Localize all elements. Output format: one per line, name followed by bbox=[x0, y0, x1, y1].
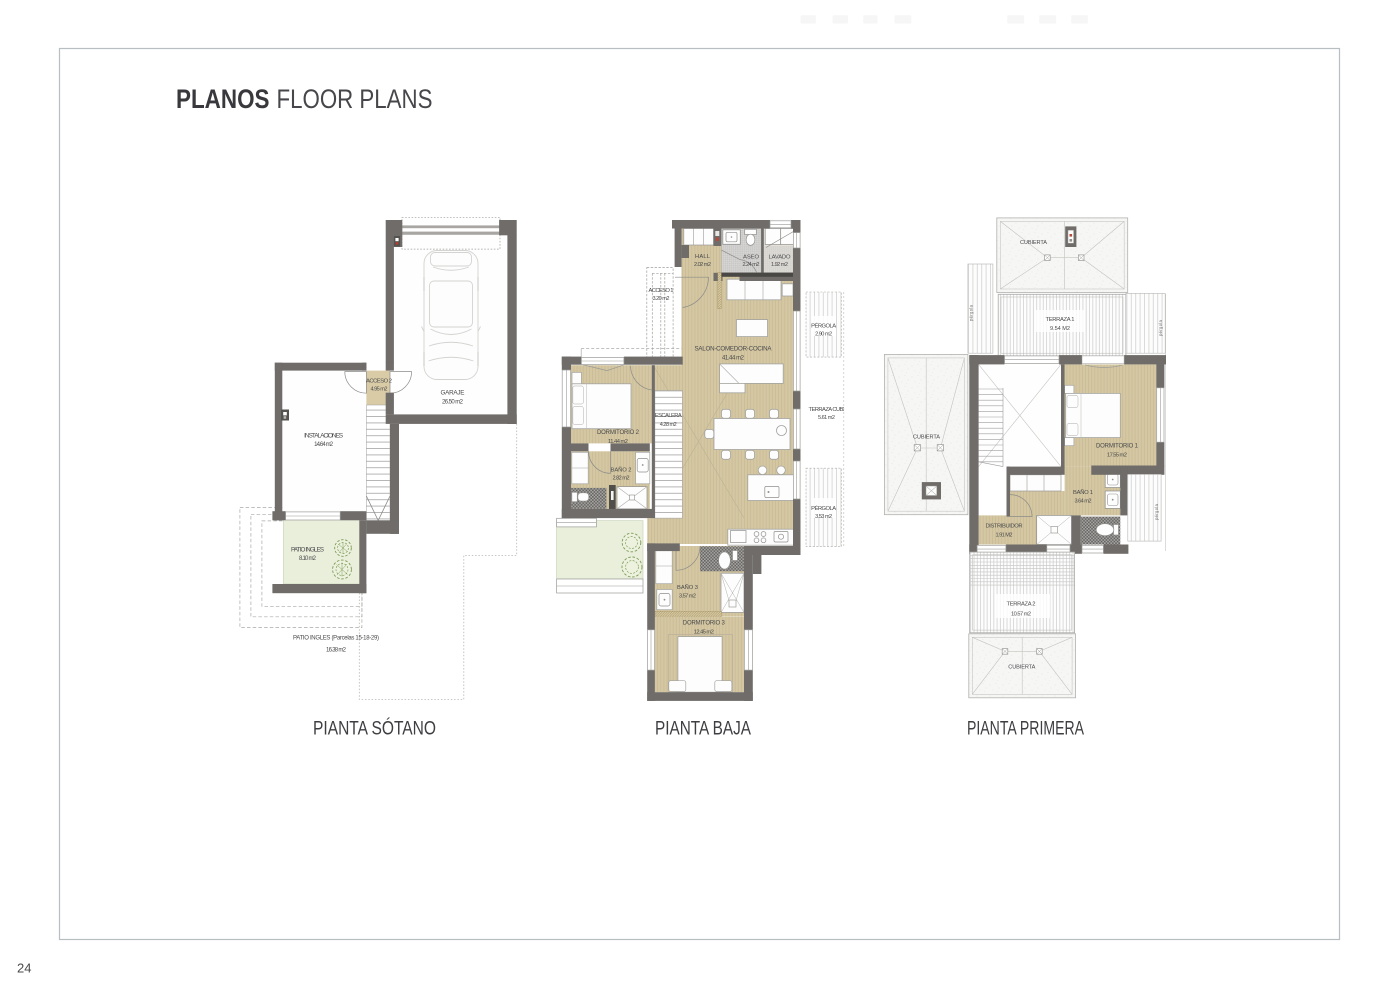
svg-text:17.55 m2: 17.55 m2 bbox=[1107, 453, 1127, 459]
svg-text:TERRAZA CUBI: TERRAZA CUBI bbox=[809, 407, 845, 413]
svg-text:GARAJE: GARAJE bbox=[441, 390, 465, 397]
svg-text:DORMITORIO 1: DORMITORIO 1 bbox=[1096, 444, 1139, 450]
svg-text:3.64 m2: 3.64 m2 bbox=[1075, 499, 1092, 505]
svg-text:PÉRGOLA: PÉRGOLA bbox=[811, 505, 836, 512]
svg-text:ACCESO 1: ACCESO 1 bbox=[649, 288, 674, 294]
svg-text:CUBIERTA: CUBIERTA bbox=[913, 435, 940, 441]
svg-text:FLOOR PLANS: FLOOR PLANS bbox=[277, 84, 433, 114]
svg-text:2.02 m2: 2.02 m2 bbox=[694, 262, 711, 268]
svg-text:HALL: HALL bbox=[695, 254, 711, 260]
svg-text:PIANTA BAJA: PIANTA BAJA bbox=[655, 719, 751, 740]
svg-text:BAÑO 3: BAÑO 3 bbox=[677, 584, 698, 591]
svg-text:DISTRIBUIDOR: DISTRIBUIDOR bbox=[986, 524, 1023, 530]
svg-text:4.95 m2: 4.95 m2 bbox=[371, 387, 388, 393]
svg-text:PIANTA PRIMERA: PIANTA PRIMERA bbox=[967, 719, 1084, 740]
svg-text:BAÑO 1: BAÑO 1 bbox=[1073, 489, 1093, 496]
svg-text:TERRAZA 1: TERRAZA 1 bbox=[1046, 317, 1075, 323]
svg-text:DORMITORIO 2: DORMITORIO 2 bbox=[597, 430, 640, 436]
svg-text:3.20 m2: 3.20 m2 bbox=[653, 296, 670, 302]
svg-text:PÉRGOLA: PÉRGOLA bbox=[811, 323, 836, 330]
svg-text:5.61 m2: 5.61 m2 bbox=[818, 415, 835, 421]
svg-text:41.44 m2: 41.44 m2 bbox=[722, 356, 745, 362]
svg-text:CUBIERTA: CUBIERTA bbox=[1008, 665, 1035, 671]
svg-text:16.38 m2: 16.38 m2 bbox=[326, 648, 347, 654]
svg-text:pérgola: pérgola bbox=[1154, 503, 1159, 520]
svg-text:BAÑO 2: BAÑO 2 bbox=[611, 467, 632, 474]
svg-text:ACCESO 2: ACCESO 2 bbox=[366, 379, 392, 385]
svg-text:CUBIERTA: CUBIERTA bbox=[1020, 240, 1047, 246]
svg-text:PATIO INGLES: PATIO INGLES bbox=[291, 547, 324, 554]
svg-text:2.24 m2: 2.24 m2 bbox=[743, 262, 760, 268]
svg-text:pérgola: pérgola bbox=[969, 304, 974, 321]
svg-text:DORMITORIO 3: DORMITORIO 3 bbox=[683, 621, 726, 627]
svg-text:PATIO INGLES (Parcelas 15-18-2: PATIO INGLES (Parcelas 15-18-29) bbox=[293, 636, 379, 642]
svg-text:10.57 m2: 10.57 m2 bbox=[1011, 612, 1031, 618]
svg-text:14.64 m2: 14.64 m2 bbox=[314, 442, 334, 448]
svg-text:PIANTA SÓTANO: PIANTA SÓTANO bbox=[313, 718, 436, 740]
svg-text:ASEO: ASEO bbox=[743, 255, 759, 261]
svg-text:9.54 M2: 9.54 M2 bbox=[1050, 326, 1070, 332]
svg-text:TERRAZA 2: TERRAZA 2 bbox=[1007, 602, 1036, 608]
svg-text:ESCALERA: ESCALERA bbox=[655, 413, 682, 419]
svg-text:2.90 m2: 2.90 m2 bbox=[815, 332, 832, 338]
svg-text:3.57 m2: 3.57 m2 bbox=[679, 594, 696, 600]
svg-text:26.50 m2: 26.50 m2 bbox=[442, 400, 464, 406]
svg-text:2.82 m2: 2.82 m2 bbox=[613, 476, 630, 482]
svg-text:LAVADO: LAVADO bbox=[769, 255, 791, 261]
svg-text:8.10 m2: 8.10 m2 bbox=[299, 556, 317, 562]
svg-text:1.91 M2: 1.91 M2 bbox=[996, 533, 1013, 539]
svg-text:SALON-COMEDOR-COCINA: SALON-COMEDOR-COCINA bbox=[695, 346, 773, 353]
svg-text:3.53 m2: 3.53 m2 bbox=[815, 514, 832, 520]
svg-text:24: 24 bbox=[17, 961, 31, 976]
svg-text:PLANOS: PLANOS bbox=[176, 84, 270, 114]
svg-text:INSTALACIONES: INSTALACIONES bbox=[304, 433, 343, 440]
svg-text:1.92 m2: 1.92 m2 bbox=[771, 262, 788, 268]
svg-text:pérgola: pérgola bbox=[1158, 319, 1163, 336]
svg-text:4.28 m2: 4.28 m2 bbox=[660, 422, 677, 428]
